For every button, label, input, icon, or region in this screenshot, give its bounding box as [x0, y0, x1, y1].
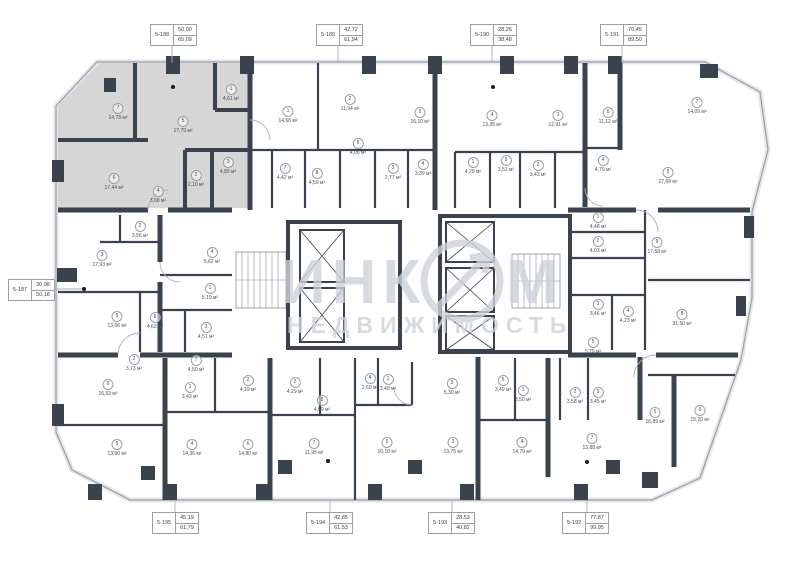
floor-plan-drawing: [0, 0, 800, 566]
floor-plan-page: 714,78 м²517,79 м²14,61 м²34,89 м²22,10 …: [0, 0, 800, 566]
elevator-shafts: [300, 222, 494, 350]
unit-leader-dot: [82, 287, 86, 291]
stairs-left: [236, 252, 286, 308]
highlighted-apartment[interactable]: [58, 63, 248, 208]
stairs-right: [512, 254, 560, 308]
